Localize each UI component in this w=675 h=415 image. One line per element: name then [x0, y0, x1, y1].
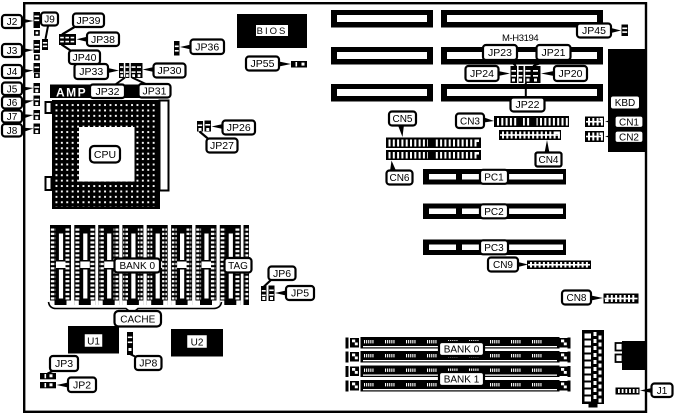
svg-text:J5: J5 — [7, 84, 18, 95]
svg-text:CACHE: CACHE — [120, 314, 155, 325]
svg-text:JP55: JP55 — [251, 58, 275, 70]
svg-text:CPU: CPU — [94, 149, 116, 161]
svg-text:BANK 0: BANK 0 — [444, 345, 480, 356]
svg-text:U1: U1 — [87, 337, 100, 348]
svg-text:JP36: JP36 — [195, 41, 219, 53]
svg-text:JP3: JP3 — [55, 358, 73, 370]
svg-text:JP33: JP33 — [79, 66, 103, 78]
svg-text:PC3: PC3 — [484, 243, 504, 254]
svg-text:J8: J8 — [7, 126, 18, 137]
svg-text:JP8: JP8 — [139, 358, 157, 370]
svg-text:AMP: AMP — [56, 86, 87, 100]
svg-text:M-H3194: M-H3194 — [502, 33, 538, 44]
svg-text:JP23: JP23 — [488, 47, 512, 59]
svg-text:JP20: JP20 — [559, 68, 583, 80]
svg-text:JP24: JP24 — [470, 68, 494, 80]
svg-text:JP27: JP27 — [210, 140, 234, 152]
svg-text:CN2: CN2 — [619, 132, 639, 143]
svg-text:CN5: CN5 — [392, 114, 412, 125]
svg-text:JP32: JP32 — [96, 86, 120, 98]
svg-text:JP45: JP45 — [582, 25, 606, 37]
svg-text:TAG: TAG — [228, 261, 248, 272]
svg-text:BIOS: BIOS — [257, 26, 288, 37]
svg-text:J6: J6 — [7, 98, 18, 109]
svg-text:U2: U2 — [191, 338, 204, 349]
svg-text:PC1: PC1 — [484, 172, 504, 183]
svg-text:J9: J9 — [44, 15, 55, 26]
svg-text:BANK 0: BANK 0 — [119, 261, 155, 272]
svg-text:JP2: JP2 — [73, 379, 91, 391]
svg-text:J1: J1 — [657, 386, 668, 397]
svg-text:CN1: CN1 — [619, 117, 639, 128]
svg-text:JP26: JP26 — [227, 122, 251, 134]
svg-text:JP21: JP21 — [542, 47, 566, 59]
svg-text:KBD: KBD — [615, 98, 636, 109]
svg-text:BANK 1: BANK 1 — [444, 375, 480, 386]
svg-text:JP40: JP40 — [73, 52, 97, 64]
svg-text:CN6: CN6 — [389, 173, 409, 184]
svg-text:PC2: PC2 — [484, 207, 504, 218]
svg-text:JP38: JP38 — [91, 34, 115, 46]
svg-text:J2: J2 — [7, 17, 18, 28]
svg-text:JP22: JP22 — [516, 99, 540, 111]
svg-text:CN4: CN4 — [538, 155, 558, 166]
svg-text:JP39: JP39 — [77, 15, 101, 27]
svg-text:JP31: JP31 — [143, 85, 167, 97]
svg-text:JP5: JP5 — [291, 288, 309, 300]
svg-text:CN8: CN8 — [566, 293, 586, 304]
svg-text:JP30: JP30 — [158, 65, 182, 77]
svg-text:J7: J7 — [7, 112, 18, 123]
svg-text:JP6: JP6 — [273, 268, 291, 280]
svg-text:CN9: CN9 — [493, 260, 513, 271]
svg-text:J4: J4 — [7, 67, 18, 78]
svg-text:J3: J3 — [7, 46, 18, 57]
svg-text:CN3: CN3 — [460, 116, 480, 127]
